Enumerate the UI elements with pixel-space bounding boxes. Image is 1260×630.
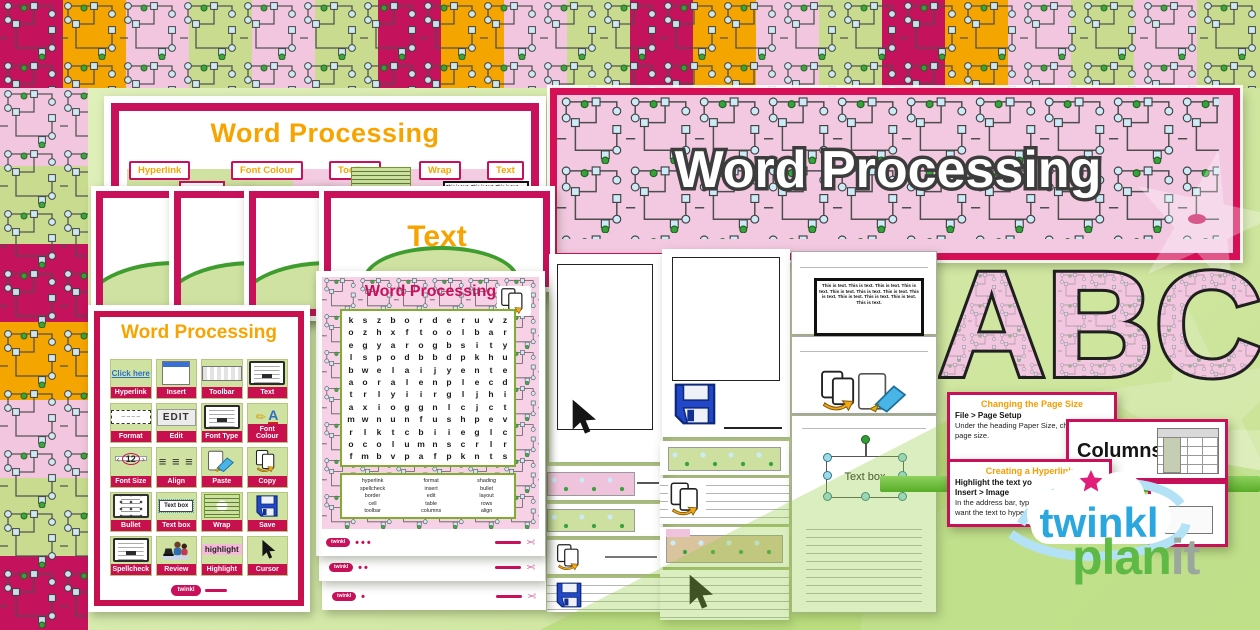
text-monitor-icon <box>248 360 288 386</box>
wordsearch-letter: o <box>358 376 372 388</box>
worksheet-strip <box>660 441 789 475</box>
wordsearch-letter: n <box>428 401 442 413</box>
vocab-item-label: Wrap <box>202 520 242 531</box>
wordsearch-letter: j <box>428 364 442 376</box>
wordsearch-letter: n <box>470 364 484 376</box>
sample-text-block: This is text. This is text. This is text… <box>814 278 924 336</box>
card-line <box>800 351 928 352</box>
wordsearch-letter: w <box>358 413 372 425</box>
twinkl-footer-logo: twinkl <box>171 585 200 596</box>
wordsearch-letter: t <box>484 450 498 462</box>
wordsearch-letter: b <box>428 351 442 363</box>
worksheet-line <box>637 482 659 484</box>
banner-title: Word Processing <box>675 141 1102 199</box>
vocab-item: 12Font Size <box>110 447 152 487</box>
wordsearch-letter: f <box>344 450 358 462</box>
wordsearch-letter: i <box>470 339 484 351</box>
vocab-item: Review <box>156 536 198 576</box>
wordsearch-letter: l <box>456 326 470 338</box>
wordsearch-word: align <box>477 508 496 516</box>
wordsearch-letter: c <box>456 401 470 413</box>
wordsearch-letter: j <box>470 401 484 413</box>
text-box-icon: Text box <box>157 493 197 519</box>
wordsearch-letter: x <box>358 401 372 413</box>
wordsearch-letter: g <box>400 401 414 413</box>
vocab-item: Text boxText box <box>156 492 198 532</box>
wordsearch-letter: o <box>386 351 400 363</box>
wordsearch-letter: h <box>372 326 386 338</box>
vocab-poster-footer: twinkl <box>100 585 298 596</box>
wordsearch-letter: a <box>484 326 498 338</box>
wordsearch-letter: a <box>386 376 400 388</box>
save-floppy-icon <box>672 381 718 427</box>
vocab-poster: Word Processing Click hereHyperlinkInser… <box>88 305 310 612</box>
vocab-item-label: Save <box>248 520 288 531</box>
text-box-card: Text box <box>791 415 937 613</box>
top-poster-label: Wrap <box>419 161 461 180</box>
vocab-item-label: Cursor <box>248 564 288 575</box>
wordsearch-letter: j <box>470 388 484 400</box>
wordsearch-word: columns <box>421 508 441 516</box>
worksheet-page-cursor <box>549 254 663 462</box>
vocab-item-label: Text box <box>157 520 197 531</box>
card-line <box>802 428 926 429</box>
worksheet-strip <box>547 504 663 536</box>
vocab-item-label: Align <box>157 476 197 487</box>
wordsearch-letter: y <box>386 388 400 400</box>
vocab-item: Bullet <box>110 492 152 532</box>
wordsearch-word: layout <box>477 493 496 501</box>
wordsearch-word: shading <box>477 478 496 486</box>
wordsearch-letter: h <box>484 351 498 363</box>
wordsearch-letter: k <box>344 314 358 326</box>
wordsearch-letter: e <box>498 364 512 376</box>
wordsearch-letter: c <box>400 426 414 438</box>
wordsearch-letter: a <box>400 364 414 376</box>
wordsearch-letter: g <box>428 339 442 351</box>
top-poster-title: Word Processing <box>119 118 531 149</box>
top-pattern-strip <box>0 0 1260 88</box>
worksheet-strip <box>547 466 663 500</box>
wordsearch-letter: g <box>414 401 428 413</box>
wordsearch-letter: r <box>344 426 358 438</box>
pattern-band <box>668 447 781 471</box>
wordsearch-letter: l <box>358 426 372 438</box>
wordsearch-letter: h <box>484 388 498 400</box>
wordsearch-letter: b <box>414 426 428 438</box>
wordsearch-word: cell <box>360 501 385 509</box>
top-poster-label: Hyperlink <box>129 161 190 180</box>
wordsearch-letter: l <box>456 388 470 400</box>
wordsearch-letter: n <box>400 413 414 425</box>
wordsearch-word: insert <box>421 486 441 494</box>
wordsearch-letter: i <box>498 388 512 400</box>
wordsearch-letter: g <box>442 388 456 400</box>
wordsearch-letter: b <box>442 339 456 351</box>
wordsearch-word: toolbar <box>360 508 385 516</box>
vocab-item: Save <box>247 492 289 532</box>
wordsearch-letter: c <box>498 426 512 438</box>
vocab-item: AFont Colour <box>247 403 289 443</box>
wordsearch-letter: v <box>386 450 400 462</box>
wordsearch-letter: o <box>442 326 456 338</box>
wordsearch-letter: e <box>456 364 470 376</box>
planit-wordmark: planit <box>1072 528 1199 586</box>
wordsearch-letter: t <box>414 326 428 338</box>
wordsearch-word-column: formatinsertedittablecolumns <box>421 478 441 517</box>
scissors-icon: ✂ <box>526 561 535 574</box>
wordsearch-letter: k <box>372 426 386 438</box>
wordsearch-letter: r <box>456 314 470 326</box>
vocab-item: Spellcheck <box>110 536 152 576</box>
wordsearch-letter: c <box>484 376 498 388</box>
spellcheck-monitor-icon <box>111 537 151 563</box>
wordsearch-letter: l <box>344 351 358 363</box>
wordsearch-letter: l <box>386 364 400 376</box>
worksheet-strip <box>660 570 789 620</box>
planit-it: it <box>1171 529 1200 585</box>
worksheet-line <box>605 556 657 558</box>
top-poster-label: Font Colour <box>231 161 303 180</box>
insert-menu-icon <box>157 360 197 386</box>
pattern-band <box>547 472 635 496</box>
wordsearch-letter: o <box>386 401 400 413</box>
cursor-icon <box>248 537 288 563</box>
vocab-item: Insert <box>156 359 198 399</box>
twinkl-footer-logo: twinkl <box>326 538 350 547</box>
wordsearch-word-column: shadingbulletlayoutrowsalign <box>477 478 496 517</box>
top-poster-label: Text <box>487 161 524 180</box>
wordsearch-letter: c <box>484 401 498 413</box>
tip-card-title: Changing the Page Size <box>955 399 1109 409</box>
wordsearch-letter: l <box>484 438 498 450</box>
wordsearch-letter: r <box>498 438 512 450</box>
wordsearch-letter: u <box>470 314 484 326</box>
wordsearch-letter: e <box>344 339 358 351</box>
wordsearch-letter: v <box>484 314 498 326</box>
worksheet-page-save <box>662 249 790 437</box>
wordsearch-letter: t <box>484 364 498 376</box>
handle-dot <box>823 492 832 501</box>
wordsearch-word: bullet <box>477 486 496 494</box>
handle-dot <box>823 453 832 462</box>
wordsearch-letter: n <box>372 413 386 425</box>
wordsearch-letter: f <box>428 450 442 462</box>
left-pattern-strip <box>0 88 88 630</box>
vocab-item-label: Font Type <box>202 431 242 442</box>
sample-text-card: This is text. This is text. This is text… <box>791 251 937 335</box>
handle-dot <box>898 453 907 462</box>
wordsearch-letter: d <box>498 376 512 388</box>
wordsearch-letter: a <box>414 450 428 462</box>
wordsearch-letter: s <box>358 351 372 363</box>
wordsearch-letter: o <box>400 314 414 326</box>
wordsearch-letter: z <box>358 326 372 338</box>
vocab-poster-title: Word Processing <box>100 322 298 344</box>
wordsearch-letter: w <box>358 364 372 376</box>
wordsearch-letter: s <box>442 438 456 450</box>
vocab-item: Wrap <box>201 492 243 532</box>
wordsearch-letter: b <box>386 314 400 326</box>
wordsearch-letter: d <box>428 314 442 326</box>
wordsearch-letter: i <box>414 388 428 400</box>
wordsearch-letter: r <box>470 438 484 450</box>
vocab-item-label: Copy <box>248 476 288 487</box>
wordsearch-letter: l <box>386 438 400 450</box>
twinkl-footer-logo: twinkl <box>329 563 353 572</box>
vocab-item-label: Edit <box>157 431 197 442</box>
vocab-item: Copy <box>247 447 289 487</box>
wordsearch-letter: y <box>498 339 512 351</box>
bullet-list-icon <box>111 493 151 519</box>
wordsearch-letter: d <box>442 351 456 363</box>
wordsearch-letter: e <box>372 364 386 376</box>
wordsearch-letter: n <box>428 438 442 450</box>
vocab-item-label: Format <box>111 431 151 442</box>
wordsearch-letter: i <box>400 388 414 400</box>
review-people-icon <box>157 537 197 563</box>
wordsearch-letter: p <box>470 413 484 425</box>
wordsearch-letter: l <box>456 376 470 388</box>
ruled-lines <box>806 522 922 604</box>
wordsearch-letter: c <box>456 438 470 450</box>
handle-dot <box>823 471 832 480</box>
vocab-item-label: Paste <box>202 476 242 487</box>
pattern-corner <box>666 529 690 537</box>
wordsearch-letter: p <box>400 450 414 462</box>
copy-icon <box>555 543 585 569</box>
wordsearch-letter: b <box>372 450 386 462</box>
worksheet-strip <box>547 578 663 612</box>
toolbar-icon <box>202 360 242 386</box>
vocab-item-label: Font Size <box>111 476 151 487</box>
pattern-band <box>666 535 783 563</box>
wordsearch-letter: g <box>470 426 484 438</box>
wordsearch-letter: i <box>414 364 428 376</box>
wordsearch-letter: e <box>414 376 428 388</box>
wordsearch-letter: k <box>470 351 484 363</box>
worksheet-strip <box>547 540 663 574</box>
vocab-item: Format <box>110 403 152 443</box>
wordsearch-letter: r <box>372 376 386 388</box>
difficulty-dots: •• <box>358 562 370 574</box>
vocab-grid: Click hereHyperlinkInsertToolbarTextForm… <box>110 359 288 576</box>
wordsearch-word: table <box>421 501 441 509</box>
wordsearch-letter: o <box>372 438 386 450</box>
font-type-monitor-icon <box>202 404 242 430</box>
wordsearch-letter: r <box>428 388 442 400</box>
save-floppy-icon <box>555 581 583 609</box>
wordsearch-letter: h <box>456 413 470 425</box>
copy-icon <box>668 481 706 515</box>
vocab-item-label: Hyperlink <box>111 387 151 398</box>
vocab-item: Toolbar <box>201 359 243 399</box>
worksheet-strip <box>660 478 789 524</box>
card-line <box>800 267 928 268</box>
wordsearch-letter: t <box>386 426 400 438</box>
wordsearch-letter: z <box>498 314 512 326</box>
wordsearch-word-column: hyperlinkspellcheckbordercelltoolbar <box>360 478 385 517</box>
twinkl-footer-logo: twinkl <box>332 592 356 601</box>
wordsearch-letter: a <box>344 376 358 388</box>
wordsearch-letter: t <box>484 339 498 351</box>
wordsearch-letter: k <box>456 450 470 462</box>
wordsearch-letter: y <box>442 364 456 376</box>
edit-icon: EDIT <box>157 404 197 430</box>
vocab-item: EDITEdit <box>156 403 198 443</box>
wordsearch-letter: c <box>358 438 372 450</box>
paste-icon <box>202 448 242 474</box>
wordsearch-letter: o <box>428 326 442 338</box>
vocab-item-label: Font Colour <box>248 424 288 442</box>
wordsearch-letter: r <box>414 314 428 326</box>
vocab-item-label: Highlight <box>202 564 242 575</box>
vocab-item: Align <box>156 447 198 487</box>
copy-paste-card <box>791 336 937 414</box>
wordsearch-letter: u <box>400 438 414 450</box>
highlight-icon: highlight <box>202 537 242 563</box>
wordsearch-letter: r <box>400 339 414 351</box>
click-here-icon: Click here <box>111 360 151 386</box>
pattern-band <box>547 509 635 532</box>
wordsearch-letter: f <box>414 413 428 425</box>
wordsearch-letter: e <box>456 426 470 438</box>
wordsearch-letter: b <box>414 351 428 363</box>
wordsearch-letter: f <box>400 326 414 338</box>
vocab-item: Text <box>247 359 289 399</box>
wordsearch-letter: p <box>442 450 456 462</box>
vocab-item-label: Insert <box>157 387 197 398</box>
wordsearch-letter: o <box>344 438 358 450</box>
abc-letters-texture: ABC <box>938 242 1260 404</box>
wordsearch-letter: a <box>386 339 400 351</box>
worksheet-line <box>724 427 782 429</box>
wordsearch-letter: e <box>470 376 484 388</box>
wordsearch-letter: b <box>344 364 358 376</box>
format-selection-icon <box>111 404 151 430</box>
wordsearch-letter: s <box>358 314 372 326</box>
wordsearch-letter: e <box>442 314 456 326</box>
save-floppy-icon <box>248 493 288 519</box>
difficulty-dots: • <box>361 591 367 603</box>
banner-art: Word Processing <box>557 95 1219 239</box>
footer-dash <box>205 589 227 592</box>
vocab-item-label: Spellcheck <box>111 564 151 575</box>
wordsearch-letter: p <box>456 351 470 363</box>
paste-brush-icon <box>856 371 912 409</box>
wordsearch-letter: x <box>386 326 400 338</box>
wordsearch-letter: v <box>498 413 512 425</box>
wordsearch-word: border <box>360 493 385 501</box>
wordsearch-letter: m <box>344 413 358 425</box>
wordsearch-letter: m <box>414 438 428 450</box>
wordsearch-letter: t <box>498 401 512 413</box>
footer-dash <box>495 541 521 544</box>
wordsearch-letter: y <box>372 339 386 351</box>
wordsearch-letter: u <box>498 351 512 363</box>
wordsearch-letter: m <box>358 450 372 462</box>
wrap-icon <box>202 493 242 519</box>
wordsearch-letter: a <box>344 401 358 413</box>
vocab-item: Font Type <box>201 403 243 443</box>
cursor-icon <box>561 398 601 442</box>
vocab-item: Paste <box>201 447 243 487</box>
resource-pack-preview: Word Processing HyperlinkFont ColourTool… <box>0 0 1260 630</box>
planit-plan: plan <box>1072 529 1171 585</box>
handle-dot <box>861 492 870 501</box>
wordsearch-word: rows <box>477 501 496 509</box>
wordsearch-letter: n <box>428 376 442 388</box>
wordsearch-letter: s <box>456 339 470 351</box>
word-processing-banner: Word Processing <box>550 88 1240 260</box>
wordsearch-letter: e <box>484 413 498 425</box>
wordsearch-letter: p <box>372 351 386 363</box>
wordsearch-letter: l <box>400 376 414 388</box>
align-icon <box>157 448 197 474</box>
wordsearch-letter: l <box>442 401 456 413</box>
wordsearch-word: format <box>421 478 441 486</box>
wordsearch-letter: b <box>470 326 484 338</box>
vocab-item-label: Toolbar <box>202 387 242 398</box>
wordsearch-letter: g <box>358 339 372 351</box>
wordsearch-letter: o <box>344 326 358 338</box>
abc-letters: ABC ABC <box>938 242 1260 404</box>
wordsearch-letter: o <box>414 339 428 351</box>
scissors-icon: ✂ <box>527 590 536 603</box>
difficulty-dots: ••• <box>355 537 373 549</box>
wordsearch-words: hyperlinkspellcheckbordercelltoolbarform… <box>340 473 516 519</box>
copy-icon <box>248 448 288 474</box>
wordsearch-letter: l <box>484 426 498 438</box>
wordsearch-letter: l <box>372 388 386 400</box>
wordsearch-letter: z <box>372 314 386 326</box>
vocab-item-label: Review <box>157 564 197 575</box>
handle-dot <box>898 492 907 501</box>
cursor-icon <box>678 573 718 615</box>
wordsearch-letter: d <box>400 351 414 363</box>
wordsearch-letter: r <box>358 388 372 400</box>
font-size-icon: 12 <box>115 456 147 460</box>
worksheet-frame <box>672 257 780 381</box>
vocab-item: Click hereHyperlink <box>110 359 152 399</box>
handle-rotate-dot <box>861 435 870 444</box>
wordsearch-letter: p <box>442 376 456 388</box>
wordsearch-sheet-front: Word Processing kszborderuvzozhxftoolbar… <box>316 271 545 556</box>
wordsearch-letter: i <box>442 426 456 438</box>
wordsearch-letter: u <box>428 413 442 425</box>
wordsearch-letter: s <box>442 413 456 425</box>
wordsearch-word: spellcheck <box>360 486 385 494</box>
vocab-item: highlightHighlight <box>201 536 243 576</box>
wordsearch-word: hyperlink <box>360 478 385 486</box>
wordsearch-letter: i <box>372 401 386 413</box>
wordsearch-letter: s <box>498 450 512 462</box>
wordsearch-letter: t <box>344 388 358 400</box>
wordsearch-word: edit <box>421 493 441 501</box>
vocab-item-label: Bullet <box>111 520 151 531</box>
wordsearch-letter: r <box>498 326 512 338</box>
footer-dash <box>496 595 522 598</box>
wordsearch-letter: n <box>470 450 484 462</box>
wordsearch-letter: i <box>428 426 442 438</box>
wordsearch-grid: kszborderuvzozhxftoolbaregyarogbsitylspo… <box>340 309 516 467</box>
worksheet-strip <box>660 527 789 567</box>
wordsearch-letter: u <box>386 413 400 425</box>
footer-dash <box>495 566 521 569</box>
vocab-item: Cursor <box>247 536 289 576</box>
scissors-icon: ✂ <box>526 536 535 549</box>
vocab-item-label: Text <box>248 387 288 398</box>
